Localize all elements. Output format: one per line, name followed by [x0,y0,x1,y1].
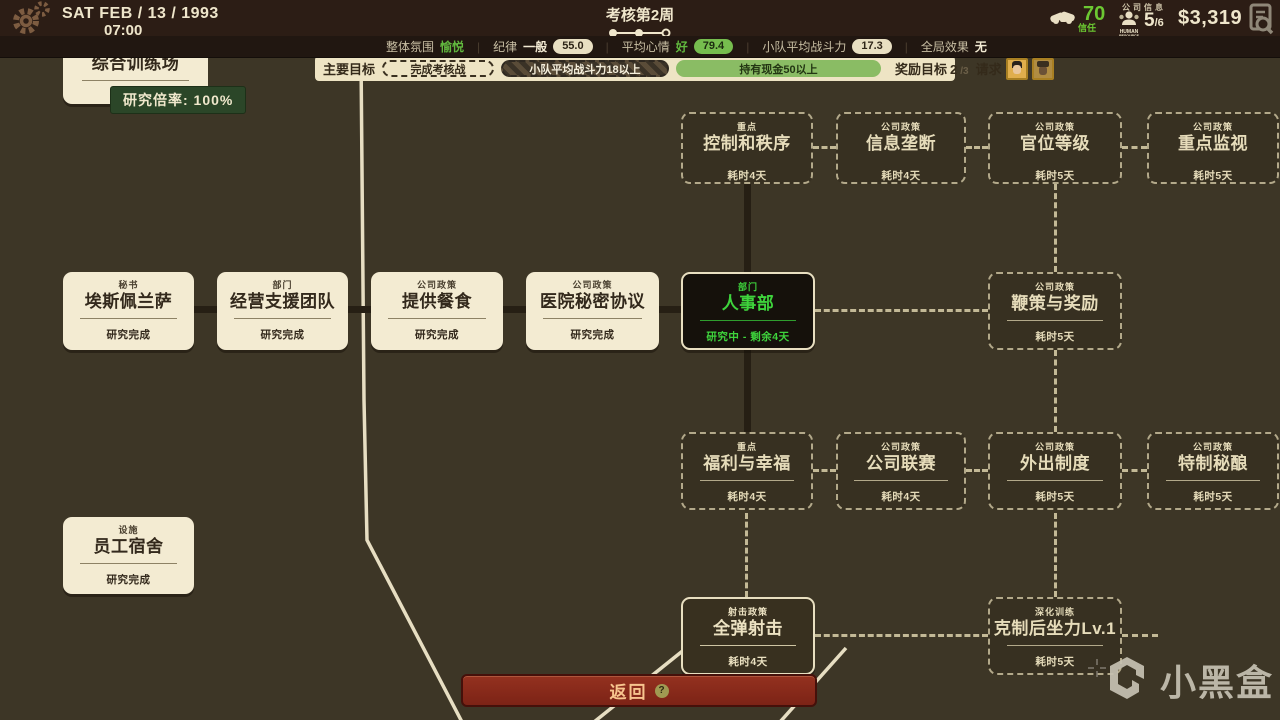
research-node-guanwei-dengji[interactable]: 公司政策官位等级耗时5天 [988,112,1122,184]
connector-line [813,469,836,472]
node-divider [234,318,331,319]
node-title: 经营支援团队 [230,291,335,312]
research-node-jingying-zhiyuan-tuandui[interactable]: 部门经营支援团队研究完成 [217,272,348,350]
company-report-magnifier-icon[interactable] [1248,3,1276,40]
node-title: 信息垄断 [866,133,936,154]
node-category: 重点 [737,121,757,133]
connector-line [348,306,371,313]
back-button-label: 返回 [610,678,648,703]
stat-pill: 17.3 [852,39,891,54]
help-icon[interactable]: ? [655,684,669,698]
stats-bar: 整体氛围愉悦|纪律一般55.0|平均心情好79.4|小队平均战斗力17.3|全局… [0,36,1280,58]
request-section: 请求 [976,58,1054,80]
request-portrait-1[interactable] [1006,58,1028,80]
connector-line [966,146,988,149]
connector-line [744,184,751,272]
node-title: 公司联赛 [866,453,936,474]
request-label: 请求 [976,59,1002,78]
stats-separator: | [606,40,609,54]
research-node-gongsi-liansai[interactable]: 公司政策公司联赛耗时4天 [836,432,966,510]
connector-line [503,306,526,313]
reward-counter: 奖励目标 2 /3 [895,59,969,78]
node-status: 耗时5天 [1035,654,1074,669]
top-bar: SAT FEB / 13 / 1993 07:00 考核第2周 70 [0,0,1280,36]
stat-value: 无 [975,38,987,55]
node-category: 射击政策 [728,606,768,618]
node-category: 重点 [737,441,757,453]
node-status: 研究中 - 剩余4天 [706,329,789,344]
trust-display: 70 信任 [1048,4,1105,33]
stat-label: 平均心情 [622,38,670,55]
node-status: 耗时5天 [1035,329,1074,344]
connector-line [815,309,988,312]
trust-value: 70 [1083,4,1105,24]
stat-4: 小队平均战斗力17.3 [762,38,891,55]
stat-pill: 55.0 [553,39,592,54]
node-title: 全弹射击 [713,618,783,639]
connector-line [813,146,836,149]
node-category: 公司政策 [881,441,921,453]
reward-total: /3 [960,66,968,77]
node-category: 秘书 [118,279,138,291]
road-line [361,56,462,720]
stat-value: 好 [676,38,688,55]
heybox-logo-icon [1106,655,1150,701]
node-category: 部门 [738,281,758,293]
stat-3: 平均心情好79.4 [622,38,733,55]
stats-separator: | [905,40,908,54]
objective-goal-2: 小队平均战斗力18以上 [501,60,669,77]
objectives-bar: 主要目标 完成考核战小队平均战斗力18以上持有现金50以上 奖励目标 2 /3 … [315,56,955,81]
node-status: 耗时5天 [1035,489,1074,504]
connector-line [1122,146,1147,149]
stat-value: 一般 [523,38,547,55]
node-status: 耗时4天 [727,489,766,504]
node-divider [1166,480,1261,481]
node-divider [80,318,177,319]
stat-2: 纪律一般55.0 [493,38,592,55]
node-divider [700,645,796,646]
connector-line [1122,634,1158,637]
node-category: 公司政策 [572,279,612,291]
research-node-xinxi-longduan[interactable]: 公司政策信息垄断耗时4天 [836,112,966,184]
node-title: 特制秘酿 [1178,453,1248,474]
watermark-text: 小黑盒 [1160,654,1274,706]
node-category: 深化训练 [1035,606,1075,618]
reward-current: 2 [950,62,957,77]
research-multiplier-tooltip: 研究倍率: 100% [110,86,246,114]
research-node-fuli-yu-xingfu[interactable]: 重点福利与幸福耗时4天 [681,432,813,510]
research-node-tigong-canshi[interactable]: 公司政策提供餐食研究完成 [371,272,503,350]
week-title: 考核第2周 [560,4,720,25]
node-divider [700,320,796,321]
stats-separator: | [746,40,749,54]
stat-label: 整体氛围 [386,38,434,55]
node-category: 设施 [118,524,138,536]
node-title: 控制和秩序 [703,133,791,154]
connector-line [966,469,988,472]
request-portrait-2[interactable] [1032,58,1054,80]
research-node-yiyuan-mimi-xieyi[interactable]: 公司政策医院秘密协议研究完成 [526,272,659,350]
stat-label: 全局效果 [921,38,969,55]
stat-value: 愉悦 [440,38,464,55]
date-time-display: SAT FEB / 13 / 1993 07:00 [62,5,219,39]
stat-label: 纪律 [493,38,517,55]
node-status: 耗时5天 [1193,489,1232,504]
objective-goal-3: 持有现金50以上 [676,60,881,77]
research-node-waichu-zhidu[interactable]: 公司政策外出制度耗时5天 [988,432,1122,510]
node-status: 耗时5天 [1035,168,1074,183]
research-node-quandan-sheji[interactable]: 射击政策全弹射击耗时4天 [681,597,815,675]
node-status: 耗时5天 [1193,168,1232,183]
node-status: 耗时4天 [728,654,767,669]
stat-5: 全局效果无 [921,38,987,55]
heybox-watermark: 小黑盒 [1106,654,1274,706]
node-status: 研究完成 [107,572,151,587]
node-divider [80,563,177,564]
node-divider [82,80,189,81]
watermark-deco [1088,667,1106,669]
research-node-renshibu[interactable]: 部门人事部研究中 - 剩余4天 [681,272,815,350]
human-resource-icon: HUMAN RESOURCE [1118,11,1140,38]
date-display: SAT FEB / 13 / 1993 [62,5,219,23]
connector-line [1054,513,1057,597]
research-node-kongzhi-he-zhixu[interactable]: 重点控制和秩序耗时4天 [681,112,813,184]
node-divider [700,480,795,481]
objective-goal-1: 完成考核战 [382,60,494,77]
node-category: 公司政策 [1035,281,1075,293]
game-screen: 综合训练场研究完成重点控制和秩序耗时4天公司政策信息垄断耗时4天公司政策官位等级… [0,0,1280,720]
node-category: 公司政策 [1035,121,1075,133]
stats-items: 整体氛围愉悦|纪律一般55.0|平均心情好79.4|小队平均战斗力17.3|全局… [386,36,987,57]
connector-line [194,306,217,313]
node-divider [1007,320,1103,321]
research-multiplier-text: 研究倍率: 100% [123,90,233,110]
handshake-icon [1048,4,1078,30]
node-title: 医院秘密协议 [540,291,645,312]
node-category: 公司政策 [417,279,457,291]
research-node-aisipeilansa[interactable]: 秘书埃斯佩兰萨研究完成 [63,272,194,350]
stats-separator: | [477,40,480,54]
research-node-zhongdian-jianshi[interactable]: 公司政策重点监视耗时5天 [1147,112,1279,184]
research-node-tezhi-miniang[interactable]: 公司政策特制秘酿耗时5天 [1147,432,1279,510]
connector-line [1054,350,1057,432]
node-status: 耗时4天 [881,168,920,183]
back-button[interactable]: 返回 ? [461,674,817,707]
node-title: 鞭策与奖励 [1011,293,1099,314]
node-divider [388,318,486,319]
hr-max: /6 [1155,17,1164,29]
node-divider [543,318,641,319]
connector-line [745,513,748,597]
node-divider [854,480,947,481]
node-status: 研究完成 [571,327,615,342]
node-status: 研究完成 [415,327,459,342]
node-title: 埃斯佩兰萨 [85,291,173,312]
node-title: 人事部 [722,293,775,314]
hr-count-display: HUMAN RESOURCE 5 /6 [1118,11,1164,38]
node-category: 公司政策 [881,121,921,133]
node-status: 研究完成 [107,327,151,342]
node-title: 重点监视 [1178,133,1248,154]
node-divider [1007,645,1103,646]
connector-line [659,306,681,313]
research-node-biance-yu-jiangli[interactable]: 公司政策鞭策与奖励耗时5天 [988,272,1122,350]
money-display: $3,319 [1178,7,1242,30]
stat-1: 整体氛围愉悦 [386,38,464,55]
objectives-goals: 完成考核战小队平均战斗力18以上持有现金50以上 [382,60,881,77]
node-title: 提供餐食 [402,291,472,312]
node-title: 外出制度 [1020,453,1090,474]
node-title: 官位等级 [1020,133,1090,154]
connector-line [1054,184,1057,272]
node-category: 公司政策 [1193,441,1233,453]
node-status: 耗时4天 [881,489,920,504]
node-category: 部门 [272,279,292,291]
hr-current: 5 [1144,11,1155,30]
connector-line [744,350,751,432]
reward-label: 奖励目标 [895,59,947,78]
node-divider [1007,480,1103,481]
node-title: 福利与幸福 [703,453,791,474]
node-title: 员工宿舍 [94,536,164,557]
node-status: 耗时4天 [727,168,766,183]
connector-line [815,634,988,637]
research-node-yuangong-sushe[interactable]: 设施员工宿舍研究完成 [63,517,194,594]
node-status: 研究完成 [261,327,305,342]
stat-label: 小队平均战斗力 [762,38,846,55]
node-category: 公司政策 [1193,121,1233,133]
node-category: 公司政策 [1035,441,1075,453]
trust-label: 信任 [1078,24,1105,33]
objectives-title: 主要目标 [323,59,375,78]
node-title: 克制后坐力Lv.1 [994,618,1116,639]
research-node-kezhi-houzuoli-lv1[interactable]: 深化训练克制后坐力Lv.1耗时5天 [988,597,1122,675]
stat-pill: 79.4 [694,39,733,54]
connector-line [1122,469,1147,472]
